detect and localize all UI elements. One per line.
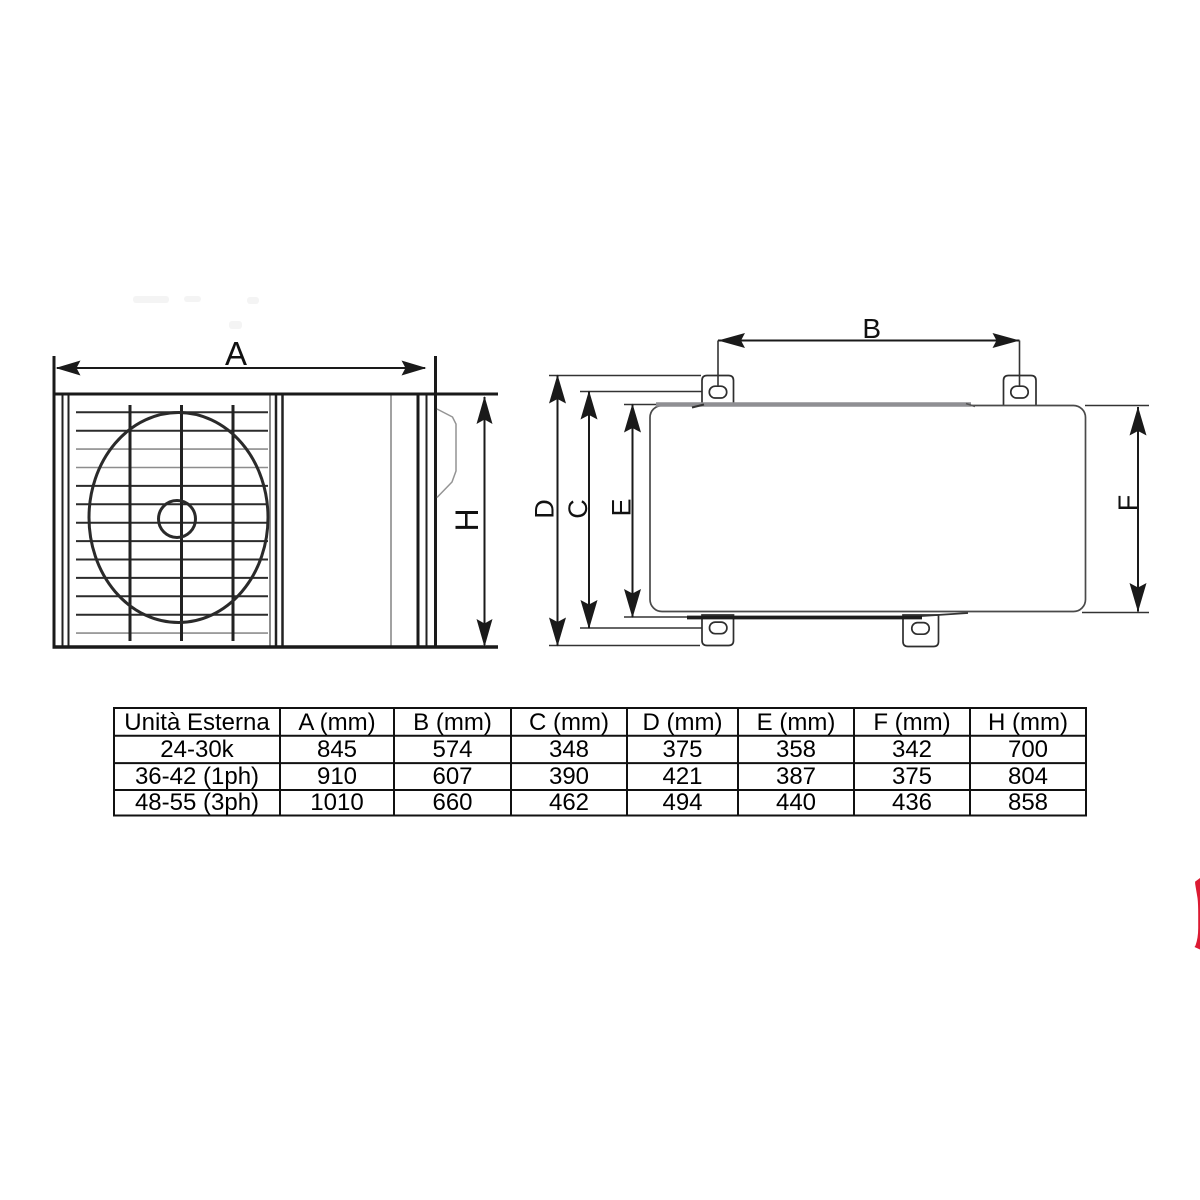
svg-text:24-30k: 24-30k: [160, 736, 234, 763]
svg-text:B: B: [862, 313, 881, 344]
svg-text:462: 462: [549, 789, 589, 816]
svg-text:375: 375: [892, 763, 932, 790]
svg-text:H (mm): H (mm): [988, 709, 1068, 736]
svg-text:436: 436: [892, 789, 932, 816]
svg-text:858: 858: [1008, 789, 1048, 816]
svg-text:1010: 1010: [310, 789, 363, 816]
svg-text:342: 342: [892, 736, 932, 763]
svg-text:574: 574: [432, 736, 472, 763]
svg-text:910: 910: [317, 763, 357, 790]
svg-text:660: 660: [432, 789, 472, 816]
svg-text:A: A: [225, 335, 247, 372]
svg-text:B (mm): B (mm): [413, 709, 492, 736]
svg-text:845: 845: [317, 736, 357, 763]
svg-text:C (mm): C (mm): [529, 709, 609, 736]
svg-text:348: 348: [549, 736, 589, 763]
svg-text:E: E: [607, 498, 637, 516]
svg-text:D: D: [529, 499, 559, 519]
svg-text:440: 440: [776, 789, 816, 816]
svg-text:700: 700: [1008, 736, 1048, 763]
svg-text:Unità Esterna: Unità Esterna: [124, 709, 270, 736]
svg-text:390: 390: [549, 763, 589, 790]
svg-text:E (mm): E (mm): [757, 709, 836, 736]
svg-text:421: 421: [662, 763, 702, 790]
svg-text:C: C: [563, 499, 593, 519]
svg-text:F (mm): F (mm): [873, 709, 950, 736]
svg-text:494: 494: [662, 789, 702, 816]
svg-text:F: F: [1113, 495, 1143, 512]
svg-text:H: H: [449, 508, 485, 531]
svg-text:607: 607: [432, 763, 472, 790]
svg-text:A (mm): A (mm): [298, 709, 375, 736]
svg-text:375: 375: [662, 736, 702, 763]
svg-text:358: 358: [776, 736, 816, 763]
svg-text:48-55 (3ph): 48-55 (3ph): [135, 789, 259, 816]
svg-text:36-42 (1ph): 36-42 (1ph): [135, 763, 259, 790]
svg-text:387: 387: [776, 763, 816, 790]
svg-text:D (mm): D (mm): [643, 709, 723, 736]
svg-text:804: 804: [1008, 763, 1048, 790]
